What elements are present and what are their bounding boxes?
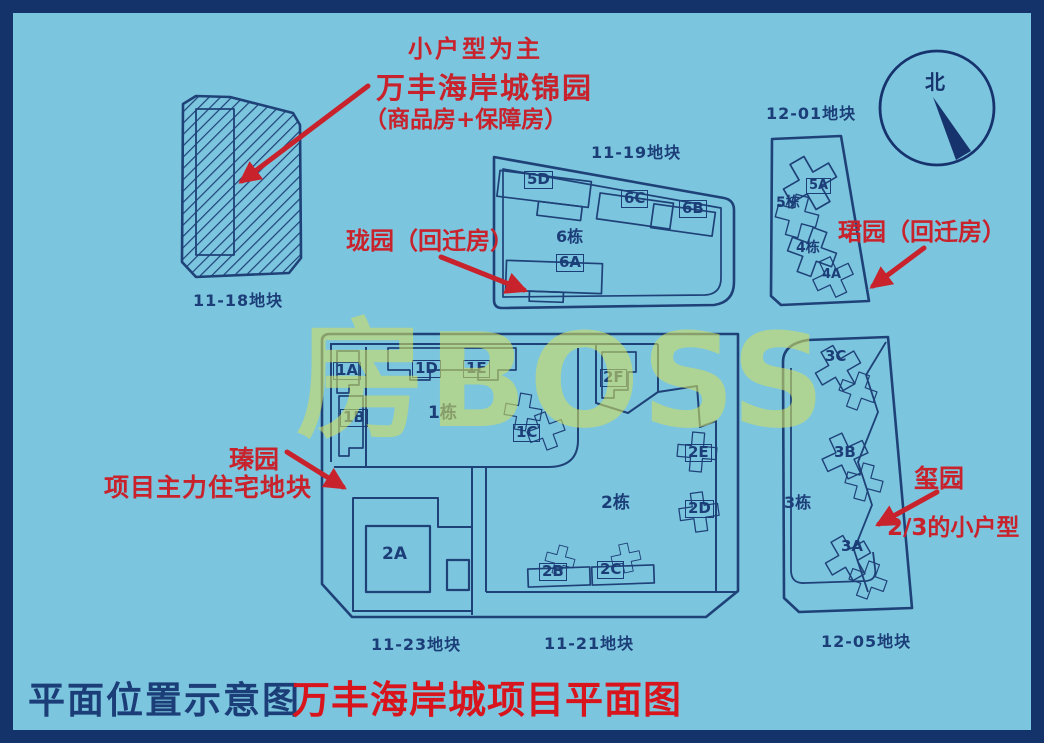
- building-label-2E: 2E: [685, 444, 712, 462]
- building-label-blk3: 3栋: [784, 495, 811, 512]
- plot-label-12-05: 12-05地块: [821, 628, 911, 652]
- annotation-jinyuan-line3: （商品房+保障房）: [364, 100, 567, 134]
- arrow-junyuan: [873, 248, 924, 286]
- page-title-right: 万丰海岸城项目平面图: [292, 669, 682, 724]
- building-label-blk4: 4栋: [796, 241, 820, 256]
- building-label-blk6: 6栋: [556, 229, 583, 246]
- plot-label-11-18: 11-18地块: [193, 287, 283, 311]
- arrow-longyuan: [441, 257, 524, 290]
- building-label-2F: 2F: [600, 369, 627, 387]
- building-label-4A: 4A: [822, 268, 841, 282]
- building-label-2D: 2D: [685, 500, 714, 518]
- plot-label-11-19: 11-19地块: [591, 139, 681, 163]
- building-label-1B: 1B: [340, 409, 368, 427]
- building-label-6C: 6C: [621, 190, 648, 208]
- site-plan-page: 小户型为主 万丰海岸城锦园 （商品房+保障房） 珑园（回迁房） 珺园（回迁房） …: [0, 0, 1044, 743]
- building-label-2C: 2C: [597, 561, 624, 579]
- annotation-junyuan: 珺园（回迁房）: [838, 212, 1006, 247]
- building-label-5A: 5A: [806, 178, 831, 194]
- building-label-1E: 1E: [463, 360, 490, 378]
- plot-11-18-shape: [182, 96, 301, 277]
- building-label-1C: 1C: [513, 424, 540, 442]
- plot-12-05-shape: [783, 337, 912, 612]
- plot-label-12-01: 12-01地块: [766, 100, 856, 124]
- building-label-blk2: 2栋: [601, 495, 630, 513]
- building-label-6B: 6B: [679, 200, 707, 218]
- plot-main-shape: [322, 334, 738, 617]
- plot-label-11-23: 11-23地块: [371, 631, 461, 655]
- building-label-2B: 2B: [539, 563, 567, 581]
- building-label-6A: 6A: [556, 254, 584, 272]
- building-label-2A: 2A: [382, 546, 407, 564]
- plot-label-11-21: 11-21地块: [544, 630, 634, 654]
- building-label-3C: 3C: [825, 349, 846, 365]
- building-label-1D: 1D: [412, 360, 441, 378]
- page-title-left: 平面位置示意图: [28, 670, 301, 724]
- annotation-jinyuan-line1: 小户型为主: [408, 29, 543, 64]
- building-label-3A: 3A: [841, 539, 863, 555]
- annotation-zhenyuan-desc: 项目主力住宅地块: [104, 468, 312, 504]
- annotation-xiyuan-desc: 2/3的小户型: [887, 508, 1019, 542]
- building-label-blk1: 1栋: [428, 405, 457, 423]
- building-label-1A: 1A: [333, 362, 361, 380]
- building-label-blk5: 5栋: [776, 196, 800, 211]
- annotation-longyuan: 珑园（回迁房）: [346, 221, 514, 256]
- annotation-xiyuan-name: 玺园: [914, 459, 964, 495]
- building-label-3B: 3B: [834, 445, 856, 461]
- building-label-5D: 5D: [524, 171, 553, 189]
- compass-north-label: 北: [925, 66, 945, 95]
